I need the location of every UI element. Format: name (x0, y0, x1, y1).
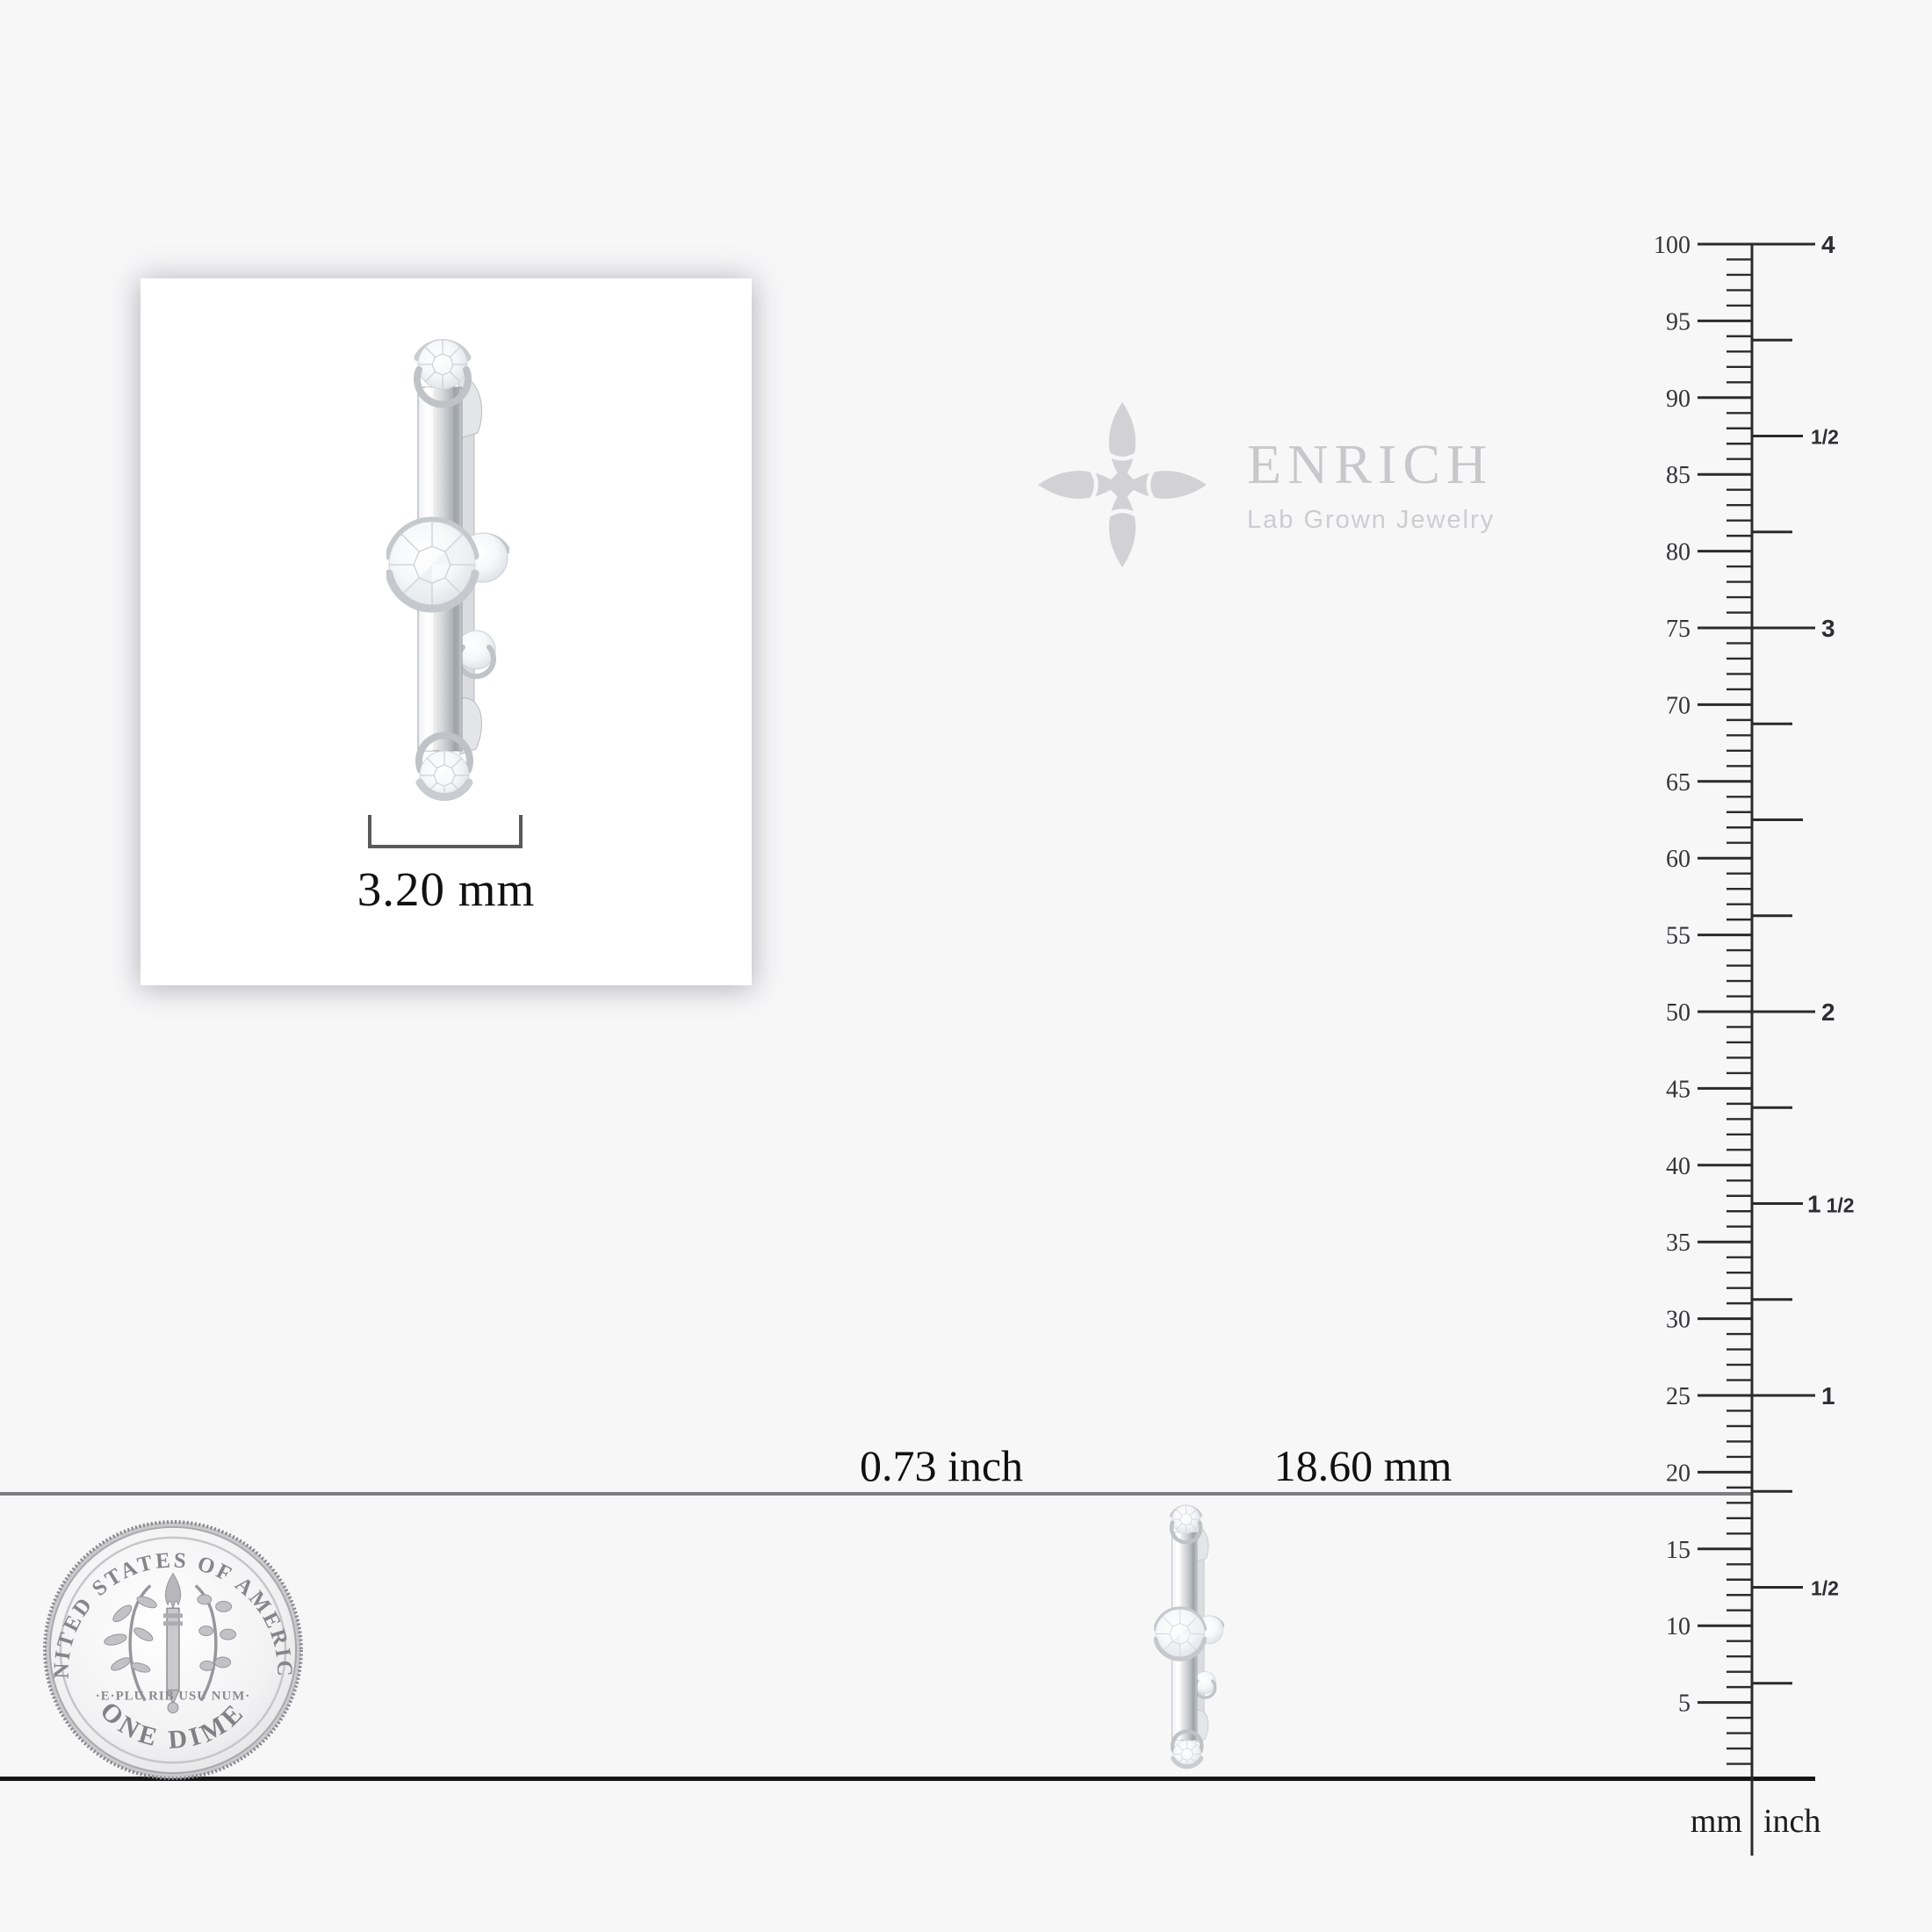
brand-logo-icon (1033, 400, 1212, 569)
width-dimension-label: 3.20 mm (141, 861, 752, 917)
ruler-mm-label: 35 (1666, 1229, 1690, 1257)
ruler-mm-label: 100 (1654, 232, 1690, 259)
ruler-mm-label: 45 (1666, 1076, 1690, 1103)
product-photo-card: 3.20 mm (141, 278, 752, 985)
ruler-inch-label: 11/2 (1807, 1191, 1855, 1218)
stage: 3.20 mm ENRICH Lab Grown Jewelry (0, 0, 1932, 1932)
ruler-mm-label: 85 (1666, 462, 1690, 489)
ruler-mm-label: 30 (1666, 1307, 1690, 1334)
ruler-mm-label: 50 (1666, 999, 1690, 1027)
ruler-mm-label: 60 (1666, 846, 1690, 873)
height-label-mm: 18.60 mm (1231, 1440, 1495, 1491)
ruler-unit-inch: inch (1763, 1803, 1820, 1840)
ruler-mm-label: 55 (1666, 923, 1690, 950)
ruler-inch-label: 2 (1821, 998, 1835, 1026)
ruler-mm-label: 15 (1666, 1537, 1690, 1564)
earring-scale-small (1154, 1499, 1224, 1776)
height-indicator-line (0, 1492, 1753, 1496)
width-bracket (368, 815, 523, 848)
dime-coin: UNITED STATES OF AMERICA ONE DIME (42, 1519, 304, 1781)
ruler-mm-label: 75 (1666, 616, 1690, 643)
ruler-mm-label: 40 (1666, 1153, 1690, 1180)
ruler-inch-label: 1/2 (1811, 1577, 1839, 1600)
ruler-mm-label: 10 (1666, 1613, 1690, 1640)
ruler-mm-label: 25 (1666, 1383, 1690, 1410)
ruler-unit-mm: mm (1690, 1803, 1742, 1840)
brand-name: ENRICH (1247, 436, 1495, 493)
ruler-mm-label: 65 (1666, 769, 1690, 797)
coin-motto-text: ·E·PLU RIB USU NUM· (96, 1690, 250, 1704)
ruler-inch-label: 1/2 (1811, 426, 1839, 449)
ruler-mm-label: 20 (1666, 1460, 1690, 1487)
ruler-inch-label: 4 (1821, 231, 1835, 258)
ruler-mm-label: 5 (1678, 1690, 1690, 1718)
earring-photo-large (386, 329, 509, 812)
ruler-inch-label: 1 (1821, 1382, 1835, 1409)
ruler-mm-label: 90 (1666, 386, 1690, 413)
brand-tagline: Lab Grown Jewelry (1247, 508, 1495, 533)
height-label-inch: 0.73 inch (810, 1440, 1073, 1491)
ruler-inch-label: 3 (1821, 615, 1835, 642)
ruler-mm-label: 95 (1666, 308, 1690, 335)
brand-watermark: ENRICH Lab Grown Jewelry (1033, 400, 1495, 569)
ruler-mm-label: 80 (1666, 539, 1690, 566)
ruler-mm-label: 70 (1666, 692, 1690, 719)
